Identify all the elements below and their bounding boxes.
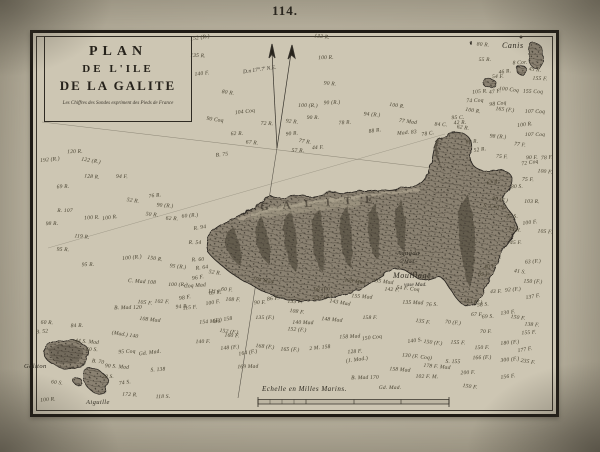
chart-page: 114. xyxy=(0,0,600,452)
title-line-3: DE LA GALITE xyxy=(45,78,191,94)
page-number: 114. xyxy=(0,3,570,19)
title-line-1: PLAN xyxy=(45,44,191,60)
title-block: PLAN DE L'ILE DE LA GALITE Les Chiffres … xyxy=(44,36,192,122)
title-line-2: DE L'ILE xyxy=(45,63,191,75)
scale-label: Echelle en Milles Marins. xyxy=(262,385,347,393)
title-note: Les Chiffres des Sondes expriment des Pi… xyxy=(45,101,191,106)
